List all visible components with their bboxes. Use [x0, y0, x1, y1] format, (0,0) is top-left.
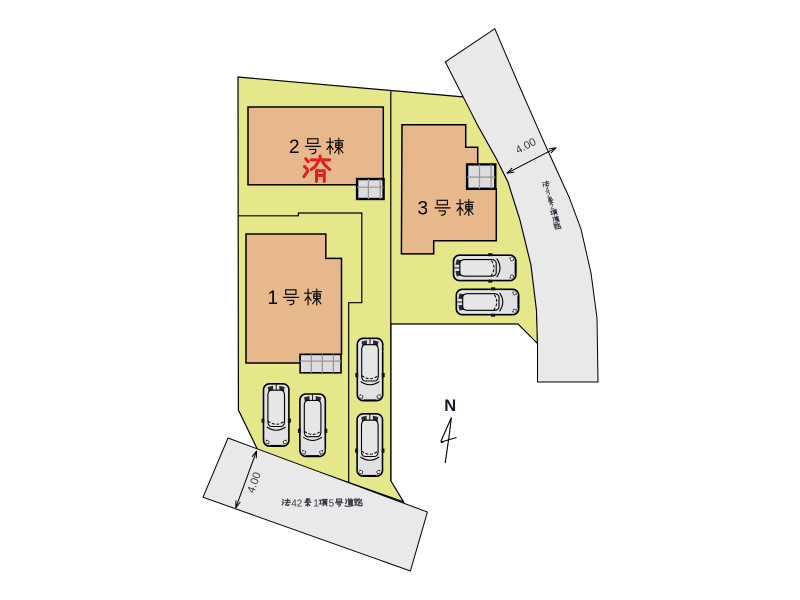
- svg-text:1: 1: [268, 288, 279, 309]
- svg-text:42: 42: [291, 499, 303, 510]
- svg-text:2: 2: [289, 137, 300, 158]
- svg-text:N: N: [444, 397, 456, 415]
- svg-text:3: 3: [418, 199, 429, 220]
- svg-text:1: 1: [313, 499, 319, 510]
- svg-text:5: 5: [329, 499, 335, 510]
